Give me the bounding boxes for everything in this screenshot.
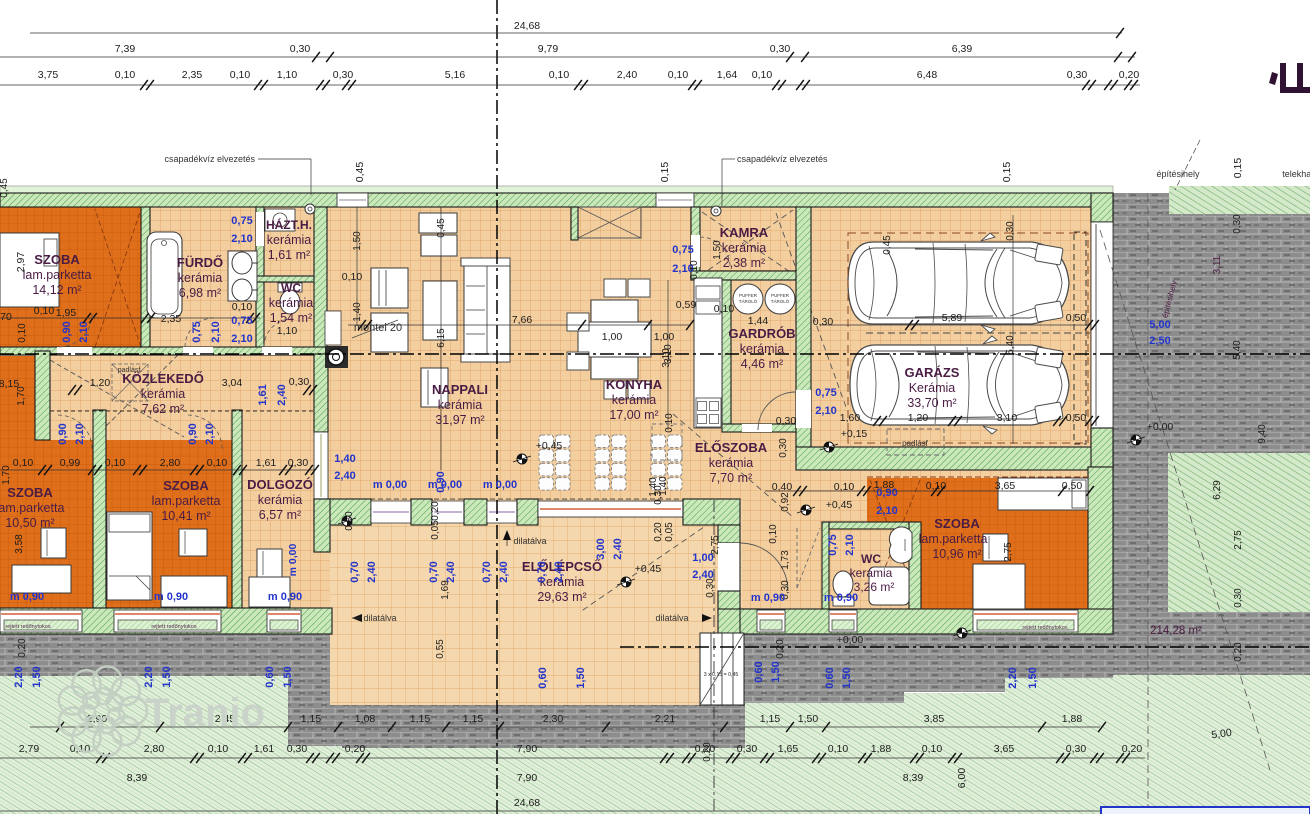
svg-text:1,20: 1,20 — [908, 412, 929, 424]
svg-text:0,10: 0,10 — [828, 743, 849, 755]
svg-text:5,89: 5,89 — [942, 312, 963, 324]
svg-text:0,30: 0,30 — [1067, 69, 1088, 81]
svg-text:0,70: 0,70 — [481, 561, 493, 582]
svg-text:4,46 m²: 4,46 m² — [741, 357, 783, 371]
svg-text:2,10: 2,10 — [844, 534, 856, 555]
svg-text:3,00: 3,00 — [595, 538, 607, 559]
svg-text:0,30: 0,30 — [344, 511, 355, 531]
svg-text:1,61: 1,61 — [256, 457, 277, 469]
svg-text:0,45: 0,45 — [882, 235, 893, 255]
svg-text:1,70: 1,70 — [1, 465, 12, 485]
svg-text:1,61: 1,61 — [254, 743, 275, 755]
svg-text:6,98 m²: 6,98 m² — [179, 286, 221, 300]
svg-text:24,68: 24,68 — [514, 797, 540, 809]
svg-text:1,44: 1,44 — [748, 315, 769, 327]
svg-text:0,60: 0,60 — [537, 667, 549, 688]
svg-text:0,30: 0,30 — [1232, 214, 1243, 234]
svg-text:2,10: 2,10 — [204, 423, 216, 444]
svg-text:5,40: 5,40 — [1232, 340, 1243, 360]
svg-text:0,30: 0,30 — [813, 316, 834, 328]
svg-text:padlásf: padlásf — [902, 439, 929, 448]
svg-text:0,10: 0,10 — [714, 303, 735, 315]
svg-text:SZOBA: SZOBA — [7, 485, 53, 500]
svg-text:0,90: 0,90 — [187, 423, 199, 444]
svg-text:3,10: 3,10 — [997, 412, 1018, 424]
svg-text:1,61 m²: 1,61 m² — [268, 248, 310, 262]
svg-text:7,90: 7,90 — [517, 743, 538, 755]
svg-text:0,15: 0,15 — [659, 162, 671, 183]
svg-text:1,40: 1,40 — [658, 476, 669, 496]
svg-text:0,10: 0,10 — [232, 301, 253, 313]
svg-text:kerámia: kerámia — [709, 456, 754, 470]
svg-text:m 0,90: m 0,90 — [751, 592, 785, 604]
svg-text:építésihely: építésihely — [1156, 169, 1200, 179]
svg-text:2,10: 2,10 — [815, 405, 836, 417]
svg-text:kerámia: kerámia — [612, 393, 657, 407]
svg-text:3,26 m²: 3,26 m² — [854, 580, 895, 594]
svg-text:7,66: 7,66 — [512, 314, 533, 326]
svg-text:1,10: 1,10 — [277, 69, 298, 81]
svg-text:3,11: 3,11 — [1212, 255, 1223, 274]
svg-text:DOLGOZÓ: DOLGOZÓ — [247, 477, 313, 492]
svg-text:2,40: 2,40 — [498, 561, 510, 582]
svg-text:rejtett redőnytokos: rejtett redőnytokos — [1022, 625, 1067, 631]
svg-text:kerámia: kerámia — [438, 398, 483, 412]
svg-text:2,20: 2,20 — [1007, 667, 1019, 688]
svg-text:rejtett redőnytokos: rejtett redőnytokos — [5, 624, 50, 630]
svg-text:0,30: 0,30 — [287, 743, 308, 755]
svg-text:1,40: 1,40 — [352, 302, 363, 322]
svg-text:dilatálva: dilatálva — [513, 536, 546, 546]
svg-text:0,15: 0,15 — [1232, 158, 1244, 179]
svg-text:WC: WC — [861, 552, 881, 566]
svg-text:0,10: 0,10 — [549, 69, 570, 81]
svg-text:m 0,00: m 0,00 — [373, 479, 407, 491]
svg-text:6,15: 6,15 — [436, 328, 447, 348]
svg-text:0,75: 0,75 — [672, 244, 693, 256]
svg-text:0,70: 0,70 — [536, 561, 548, 582]
svg-text:0,70: 0,70 — [349, 561, 361, 582]
svg-text:0,45: 0,45 — [436, 218, 447, 238]
svg-text:1,88: 1,88 — [1062, 713, 1083, 725]
svg-text:TÁROLÓ: TÁROLÓ — [739, 298, 758, 304]
svg-text:0,60: 0,60 — [824, 667, 836, 688]
svg-text:2,40: 2,40 — [445, 561, 457, 582]
svg-text:6,39: 6,39 — [952, 43, 973, 55]
svg-text:0,10: 0,10 — [664, 413, 675, 433]
svg-text:7,39: 7,39 — [115, 43, 136, 55]
svg-text:0,30: 0,30 — [289, 376, 310, 388]
svg-text:0,20: 0,20 — [430, 501, 441, 521]
svg-text:2,75: 2,75 — [710, 535, 721, 555]
svg-text:0,20: 0,20 — [1122, 743, 1143, 755]
svg-text:10,41 m²: 10,41 m² — [161, 509, 210, 523]
svg-text:0,30: 0,30 — [705, 578, 716, 598]
svg-text:0,15: 0,15 — [1001, 162, 1013, 183]
svg-text:10,50 m²: 10,50 m² — [5, 516, 54, 530]
svg-text:+0,45: +0,45 — [826, 499, 853, 511]
svg-text:9,40: 9,40 — [1257, 424, 1268, 444]
svg-text:2,40: 2,40 — [334, 470, 355, 482]
svg-text:0,20: 0,20 — [702, 742, 713, 762]
svg-text:kerámia: kerámia — [722, 241, 767, 255]
svg-text:2,10: 2,10 — [210, 321, 222, 342]
svg-text:2,97: 2,97 — [15, 252, 27, 273]
svg-text:0,10: 0,10 — [207, 457, 228, 469]
svg-text:0,55: 0,55 — [435, 639, 446, 659]
svg-text:5,16: 5,16 — [445, 69, 466, 81]
svg-text:2,80: 2,80 — [160, 457, 181, 469]
svg-text:0,30: 0,30 — [1005, 221, 1016, 241]
svg-text:9,79: 9,79 — [538, 43, 559, 55]
svg-text:2,80: 2,80 — [144, 743, 165, 755]
svg-text:0,10: 0,10 — [689, 260, 700, 280]
svg-text:0,75: 0,75 — [827, 534, 839, 555]
svg-text:kerámia: kerámia — [267, 233, 312, 247]
svg-text:m 0,00: m 0,00 — [483, 479, 517, 491]
svg-text:214,28 m²: 214,28 m² — [1150, 625, 1202, 637]
svg-text:0,99: 0,99 — [60, 457, 81, 469]
svg-text:1,65: 1,65 — [778, 743, 799, 755]
svg-text:2,10: 2,10 — [74, 423, 86, 444]
svg-text:0,10: 0,10 — [668, 69, 689, 81]
svg-text:kerámia: kerámia — [178, 271, 223, 285]
svg-text:m 0,90: m 0,90 — [154, 591, 188, 603]
svg-text:1,69: 1,69 — [440, 580, 451, 600]
svg-text:0,30: 0,30 — [776, 415, 797, 427]
svg-text:0,60: 0,60 — [753, 661, 765, 682]
svg-text:lam.parketta: lam.parketta — [23, 268, 92, 282]
svg-text:2,21: 2,21 — [655, 713, 676, 725]
svg-text:HÁZT.H.: HÁZT.H. — [266, 217, 312, 232]
svg-text:1,40: 1,40 — [334, 453, 355, 465]
svg-text:8,39: 8,39 — [903, 772, 924, 784]
svg-text:TÁROLÓ: TÁROLÓ — [771, 298, 790, 304]
svg-text:kerámia: kerámia — [141, 387, 186, 401]
svg-text:0,05: 0,05 — [664, 522, 675, 542]
svg-text:FÜRDŐ: FÜRDŐ — [177, 255, 223, 270]
svg-text:7,90: 7,90 — [517, 772, 538, 784]
svg-text:1,50: 1,50 — [1027, 667, 1039, 688]
svg-text:0,30: 0,30 — [778, 438, 789, 458]
svg-text:1,50: 1,50 — [798, 713, 819, 725]
svg-text:2,75: 2,75 — [1233, 530, 1244, 550]
svg-text:+0,45: +0,45 — [635, 563, 662, 575]
svg-text:ELŐSZOBA: ELŐSZOBA — [695, 440, 768, 455]
svg-text:NAPPALI: NAPPALI — [432, 382, 488, 397]
svg-text:0,20: 0,20 — [775, 639, 786, 659]
svg-text:m 0,00: m 0,00 — [287, 544, 299, 577]
svg-text:0,70: 0,70 — [428, 561, 440, 582]
svg-text:0,20: 0,20 — [345, 743, 366, 755]
svg-text:1,15: 1,15 — [463, 713, 484, 725]
svg-text:10,96 m²: 10,96 m² — [932, 547, 981, 561]
svg-text:0,20: 0,20 — [1119, 69, 1140, 81]
svg-text:1,10: 1,10 — [277, 325, 298, 337]
svg-text:1,88: 1,88 — [871, 743, 892, 755]
svg-text:GARDRÓB: GARDRÓB — [728, 326, 795, 341]
svg-text:0,60: 0,60 — [264, 666, 276, 687]
svg-text:7,62 m²: 7,62 m² — [142, 402, 184, 416]
svg-text:29,63 m²: 29,63 m² — [537, 590, 586, 604]
svg-text:1,60: 1,60 — [840, 412, 861, 424]
svg-text:0,20: 0,20 — [1233, 642, 1244, 662]
svg-text:WC: WC — [281, 281, 301, 295]
svg-text:0,30: 0,30 — [333, 69, 354, 81]
svg-text:m 0,90: m 0,90 — [10, 591, 44, 603]
svg-text:8,39: 8,39 — [127, 772, 148, 784]
svg-text:0,10: 0,10 — [105, 457, 126, 469]
svg-text:3,75: 3,75 — [38, 69, 59, 81]
svg-text:1,50: 1,50 — [575, 667, 587, 688]
svg-text:1,00: 1,00 — [602, 331, 623, 343]
svg-text:2,40: 2,40 — [276, 384, 288, 405]
svg-text:2,35: 2,35 — [161, 313, 182, 325]
svg-text:SZOBA: SZOBA — [34, 252, 80, 267]
svg-text:14,12 m²: 14,12 m² — [32, 283, 81, 297]
svg-text:0,20: 0,20 — [17, 638, 28, 658]
svg-text:0,30: 0,30 — [1233, 588, 1244, 608]
svg-text:1,50: 1,50 — [161, 666, 173, 687]
svg-text:PUFFER: PUFFER — [739, 293, 758, 298]
svg-text:2,20: 2,20 — [143, 666, 155, 687]
svg-text:PUFFER: PUFFER — [771, 293, 790, 298]
svg-text:+0,15: +0,15 — [841, 428, 868, 440]
svg-text:csapadékvíz elvezetés: csapadékvíz elvezetés — [164, 154, 255, 164]
svg-text:+0,45: +0,45 — [536, 440, 563, 452]
svg-text:3,65: 3,65 — [994, 743, 1015, 755]
svg-text:2,40: 2,40 — [612, 538, 624, 559]
svg-text:2,40: 2,40 — [553, 561, 565, 582]
svg-text:lam.parketta: lam.parketta — [0, 501, 64, 515]
svg-text:0,10: 0,10 — [768, 524, 779, 544]
svg-text:telekhat: telekhat — [1282, 169, 1310, 179]
svg-text:6,57 m²: 6,57 m² — [259, 508, 301, 522]
svg-text:3 x 0,15 = 0,45: 3 x 0,15 = 0,45 — [704, 672, 739, 678]
svg-text:33,70 m²: 33,70 m² — [907, 396, 956, 410]
svg-text:1,50: 1,50 — [770, 661, 782, 682]
svg-text:3,04: 3,04 — [222, 377, 243, 389]
svg-text:1,15: 1,15 — [410, 713, 431, 725]
svg-text:0,10: 0,10 — [230, 69, 251, 81]
svg-text:1,15: 1,15 — [760, 713, 781, 725]
svg-text:3,65: 3,65 — [995, 480, 1016, 492]
svg-text:2,10: 2,10 — [231, 333, 252, 345]
svg-text:0,50: 0,50 — [1062, 480, 1083, 492]
svg-text:SZOBA: SZOBA — [163, 478, 209, 493]
svg-text:1,95: 1,95 — [56, 307, 77, 319]
svg-text:24,68: 24,68 — [514, 20, 540, 32]
svg-text:0,30: 0,30 — [770, 43, 791, 55]
svg-text:kerámia: kerámia — [740, 342, 785, 356]
svg-text:0,10: 0,10 — [115, 69, 136, 81]
svg-text:0,10: 0,10 — [34, 305, 55, 317]
svg-text:0,75: 0,75 — [231, 315, 252, 327]
svg-text:0,45: 0,45 — [0, 178, 10, 198]
svg-text:5,40: 5,40 — [1005, 335, 1016, 355]
svg-text:2,10: 2,10 — [231, 233, 252, 245]
svg-text:0,92: 0,92 — [780, 492, 791, 512]
svg-text:2,40: 2,40 — [366, 561, 378, 582]
svg-text:0,75: 0,75 — [191, 321, 203, 342]
svg-text:m 0,00: m 0,00 — [428, 479, 462, 491]
svg-text:3,85: 3,85 — [924, 713, 945, 725]
svg-text:7,70 m²: 7,70 m² — [710, 471, 752, 485]
svg-text:lam.parketta: lam.parketta — [919, 532, 988, 546]
svg-text:+0,00: +0,00 — [1147, 421, 1174, 433]
svg-text:1,50: 1,50 — [841, 667, 853, 688]
svg-text:1,50: 1,50 — [352, 231, 363, 251]
svg-text:GARÁZS: GARÁZS — [905, 365, 960, 380]
svg-text:1,20: 1,20 — [90, 377, 111, 389]
svg-text:0,10: 0,10 — [922, 743, 943, 755]
svg-text:0,20: 0,20 — [653, 522, 664, 542]
svg-text:csapadékvíz elvezetés: csapadékvíz elvezetés — [737, 154, 828, 164]
svg-text:1,61: 1,61 — [257, 384, 269, 405]
svg-text:dilatálva: dilatálva — [363, 613, 396, 623]
svg-text:2,40: 2,40 — [617, 69, 638, 81]
svg-text:6,00: 6,00 — [956, 768, 968, 789]
svg-text:KAMRA: KAMRA — [720, 225, 769, 240]
svg-text:0,45: 0,45 — [354, 162, 366, 183]
svg-text:6,48: 6,48 — [917, 69, 938, 81]
svg-text:2,79: 2,79 — [19, 743, 40, 755]
svg-text:6,29: 6,29 — [1212, 480, 1223, 500]
svg-text:2,75: 2,75 — [1003, 542, 1014, 562]
svg-text:lam.parketta: lam.parketta — [152, 494, 221, 508]
svg-text:70: 70 — [0, 311, 12, 323]
svg-text:2,30: 2,30 — [543, 713, 564, 725]
svg-text:1,70: 1,70 — [16, 386, 27, 406]
svg-text:0,10: 0,10 — [13, 457, 34, 469]
svg-text:0,90: 0,90 — [57, 423, 69, 444]
svg-text:3,58: 3,58 — [14, 534, 25, 554]
svg-text:0,10: 0,10 — [752, 69, 773, 81]
svg-text:2,10: 2,10 — [876, 505, 897, 517]
svg-text:2,35: 2,35 — [182, 69, 203, 81]
svg-text:1,50: 1,50 — [31, 666, 43, 687]
svg-text:0,10: 0,10 — [342, 271, 363, 283]
svg-text:1,64: 1,64 — [717, 69, 738, 81]
svg-text:0,05: 0,05 — [430, 520, 441, 540]
svg-text:Tranio: Tranio — [145, 691, 265, 735]
svg-text:2,50: 2,50 — [1149, 335, 1170, 347]
svg-text:31,97 m²: 31,97 m² — [435, 413, 484, 427]
svg-text:kerámia: kerámia — [269, 296, 314, 310]
svg-text:m 0,90: m 0,90 — [824, 592, 858, 604]
svg-text:KÖZLEKEDŐ: KÖZLEKEDŐ — [122, 371, 204, 386]
svg-text:5,00: 5,00 — [1149, 319, 1170, 331]
svg-text:0,50: 0,50 — [1066, 412, 1087, 424]
svg-text:0,10: 0,10 — [208, 743, 229, 755]
svg-text:KONYHA: KONYHA — [606, 377, 663, 392]
svg-text:1,54 m²: 1,54 m² — [270, 311, 312, 325]
svg-text:+0,00: +0,00 — [837, 634, 864, 646]
svg-text:0,59: 0,59 — [676, 299, 697, 311]
svg-text:1,50: 1,50 — [712, 240, 723, 260]
svg-text:0,90: 0,90 — [61, 321, 73, 342]
svg-text:1,00: 1,00 — [654, 331, 675, 343]
svg-text:Kerámia: Kerámia — [909, 381, 956, 395]
svg-text:1,15: 1,15 — [301, 713, 322, 725]
svg-text:1,08: 1,08 — [355, 713, 376, 725]
svg-text:1,50: 1,50 — [282, 666, 294, 687]
svg-text:0,75: 0,75 — [231, 215, 252, 227]
svg-text:kerámia: kerámia — [258, 493, 303, 507]
svg-text:1,73: 1,73 — [780, 550, 791, 570]
svg-text:0,90: 0,90 — [876, 487, 897, 499]
svg-text:2,38 m²: 2,38 m² — [723, 256, 765, 270]
svg-text:0,30: 0,30 — [290, 43, 311, 55]
svg-text:2,20: 2,20 — [13, 666, 25, 687]
svg-text:dilatálva: dilatálva — [655, 613, 688, 623]
svg-text:kerámia: kerámia — [850, 566, 893, 580]
svg-text:2,10: 2,10 — [78, 321, 90, 342]
svg-text:SZOBA: SZOBA — [934, 516, 980, 531]
svg-text:rejtett redőnytokos: rejtett redőnytokos — [151, 624, 196, 630]
svg-text:0,75: 0,75 — [815, 387, 836, 399]
svg-text:0,10: 0,10 — [17, 323, 28, 343]
svg-text:17,00 m²: 17,00 m² — [609, 408, 658, 422]
svg-text:0,50: 0,50 — [1066, 312, 1087, 324]
svg-text:3,10: 3,10 — [661, 348, 672, 368]
svg-text:m 0,90: m 0,90 — [268, 591, 302, 603]
